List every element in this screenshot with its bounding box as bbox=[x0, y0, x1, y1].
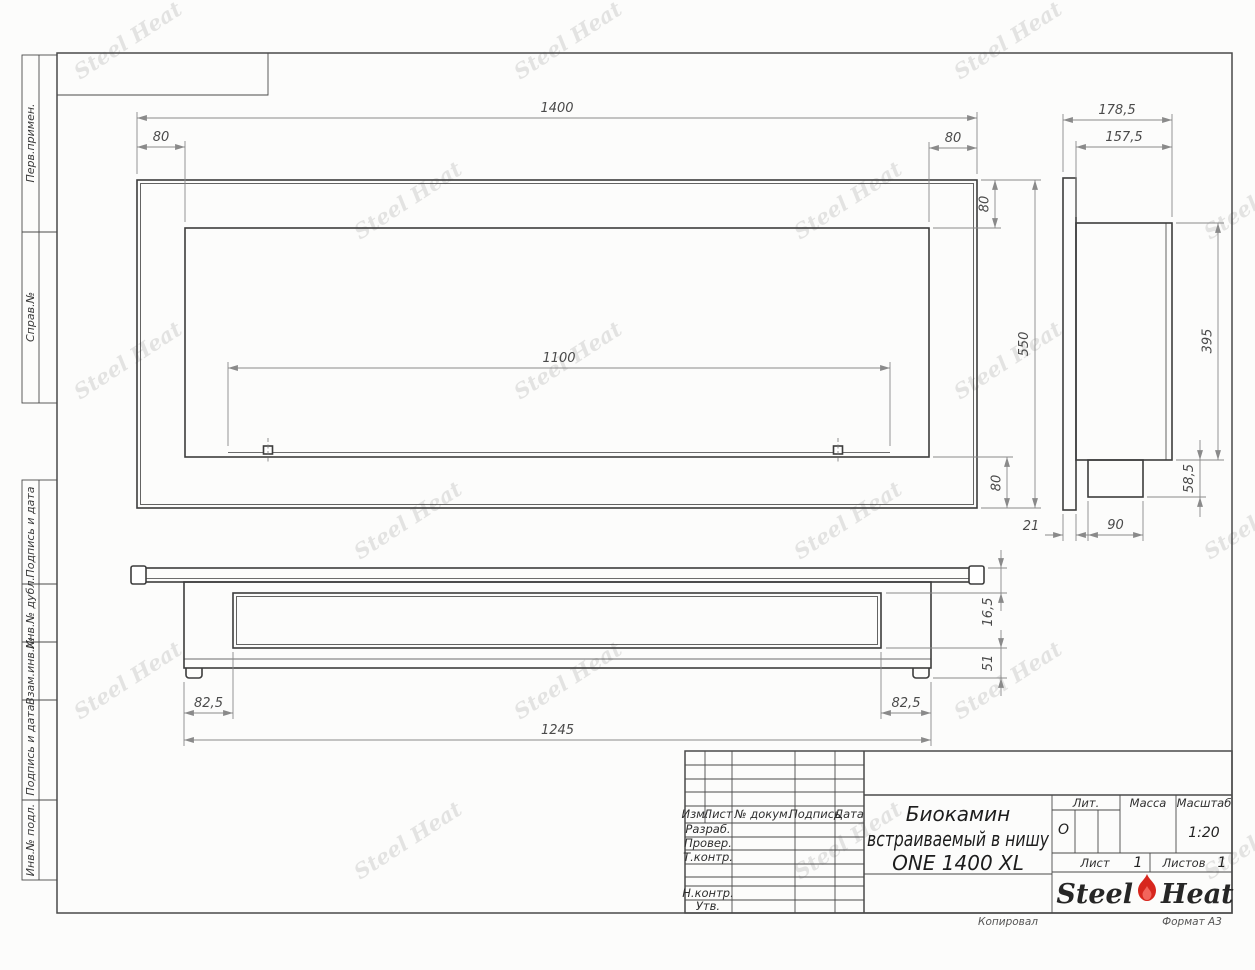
logo-steel-text: Steel bbox=[1056, 879, 1133, 910]
dim-side-flange: 21 bbox=[1023, 519, 1040, 534]
copied-label: Копировал bbox=[978, 916, 1038, 928]
doc-title-line1: Биокамин bbox=[906, 802, 1010, 826]
role-ncontrol: Н.контр. bbox=[682, 886, 733, 900]
dim-bottom-left-offset: 82,5 bbox=[194, 696, 223, 711]
rev-col-doc: № докум. bbox=[734, 807, 792, 821]
steelheat-logo: Steel Heat bbox=[1056, 874, 1234, 910]
watermark-text: Steel Heat bbox=[509, 0, 626, 84]
dim-front-top-offset: 80 bbox=[978, 196, 993, 213]
dim-bottom-right-offset: 82,5 bbox=[892, 696, 921, 711]
scale-label: Масштаб bbox=[1177, 796, 1232, 810]
flame-icon bbox=[1138, 874, 1156, 901]
watermark-text: Steel Heat bbox=[69, 636, 186, 724]
watermark-text: Steel Heat bbox=[349, 156, 466, 244]
stamp-label-podpis-data-2: Подпись и дата bbox=[24, 704, 37, 795]
watermark-text: Steel Heat bbox=[789, 476, 906, 564]
drawing-canvas: Steel HeatSteel HeatSteel HeatSteel Heat… bbox=[0, 0, 1255, 970]
dim-side-body-depth: 157,5 bbox=[1105, 130, 1142, 145]
watermark-text: Steel Heat bbox=[949, 316, 1066, 404]
side-column-labels: Перв.примен. Справ.№ Подпись и дата Инв.… bbox=[24, 103, 37, 876]
sheet-frame bbox=[22, 53, 1232, 913]
sheets-label: Листов bbox=[1162, 856, 1206, 870]
watermark-text: Steel Heat bbox=[1199, 156, 1255, 244]
role-checked: Провер. bbox=[684, 836, 732, 850]
stamp-label-inv-podl: Инв.№ подл. bbox=[24, 804, 37, 876]
sheet-value: 1 bbox=[1134, 855, 1143, 871]
title-block: Изм. Лист № докум. Подпись Дата Разраб. … bbox=[681, 751, 1234, 913]
watermark-text: Steel Heat bbox=[789, 156, 906, 244]
watermark-text: Steel Heat bbox=[349, 796, 466, 884]
stamp-label-podpis-data-1: Подпись и дата bbox=[24, 486, 37, 577]
role-developed: Разраб. bbox=[685, 822, 730, 836]
dim-front-right-offset: 80 bbox=[945, 131, 962, 146]
mass-label: Масса bbox=[1130, 796, 1167, 810]
front-view bbox=[137, 180, 977, 508]
dim-front-overall-width: 1400 bbox=[540, 101, 573, 116]
watermark-text: Steel Heat bbox=[69, 0, 186, 84]
scale-value: 1:20 bbox=[1188, 825, 1220, 841]
format-label: Формат А3 bbox=[1162, 916, 1222, 928]
dim-bottom-base: 51 bbox=[981, 655, 996, 672]
watermark-text: Steel Heat bbox=[1199, 476, 1255, 564]
watermark-text: Steel Heat bbox=[69, 316, 186, 404]
bottom-view bbox=[131, 566, 984, 678]
lit-value: О bbox=[1058, 822, 1069, 838]
dim-side-tray-depth: 90 bbox=[1107, 518, 1124, 533]
sheets-value: 1 bbox=[1218, 855, 1227, 871]
dim-bottom-body-width: 1245 bbox=[541, 723, 574, 738]
dim-bottom-flange: 16,5 bbox=[981, 598, 996, 627]
watermark-text: Steel Heat bbox=[509, 636, 626, 724]
lit-label: Лит. bbox=[1072, 796, 1099, 810]
doc-title-line2: встраиваемый в нишу bbox=[867, 827, 1050, 851]
drawing-sheet: Steel HeatSteel HeatSteel HeatSteel Heat… bbox=[0, 0, 1255, 970]
sheet-label: Лист bbox=[1079, 856, 1109, 870]
dim-side-overall-depth: 178,5 bbox=[1098, 103, 1135, 118]
stamp-label-sprav-no: Справ.№ bbox=[24, 292, 37, 342]
rev-col-date: Дата bbox=[833, 807, 864, 821]
side-view bbox=[1063, 178, 1172, 510]
watermark-text: Steel Heat bbox=[949, 636, 1066, 724]
dim-front-burner-width: 1100 bbox=[542, 351, 575, 366]
doc-title-line3: ONE 1400 XL bbox=[892, 851, 1024, 875]
dim-front-bottom-offset: 80 bbox=[990, 475, 1005, 492]
role-approved: Утв. bbox=[696, 899, 720, 913]
logo-heat-text: Heat bbox=[1160, 879, 1234, 910]
rev-col-sign: Подпись bbox=[789, 807, 841, 821]
dim-side-inner-height: 395 bbox=[1201, 329, 1216, 354]
rev-col-list: Лист bbox=[702, 807, 732, 821]
watermark-text: Steel Heat bbox=[349, 476, 466, 564]
role-tcontrol: Т.контр. bbox=[683, 850, 733, 864]
footer-labels: Копировал Формат А3 bbox=[978, 916, 1222, 928]
dim-front-height: 550 bbox=[1017, 332, 1032, 357]
dim-side-tray-height: 58,5 bbox=[1182, 464, 1197, 493]
stamp-label-perv-primen: Перв.примен. bbox=[24, 103, 37, 182]
dim-front-left-offset: 80 bbox=[153, 130, 170, 145]
stamp-label-vzam-inv: Взам.инв.№ bbox=[24, 637, 37, 705]
watermark-text: Steel Heat bbox=[949, 0, 1066, 84]
